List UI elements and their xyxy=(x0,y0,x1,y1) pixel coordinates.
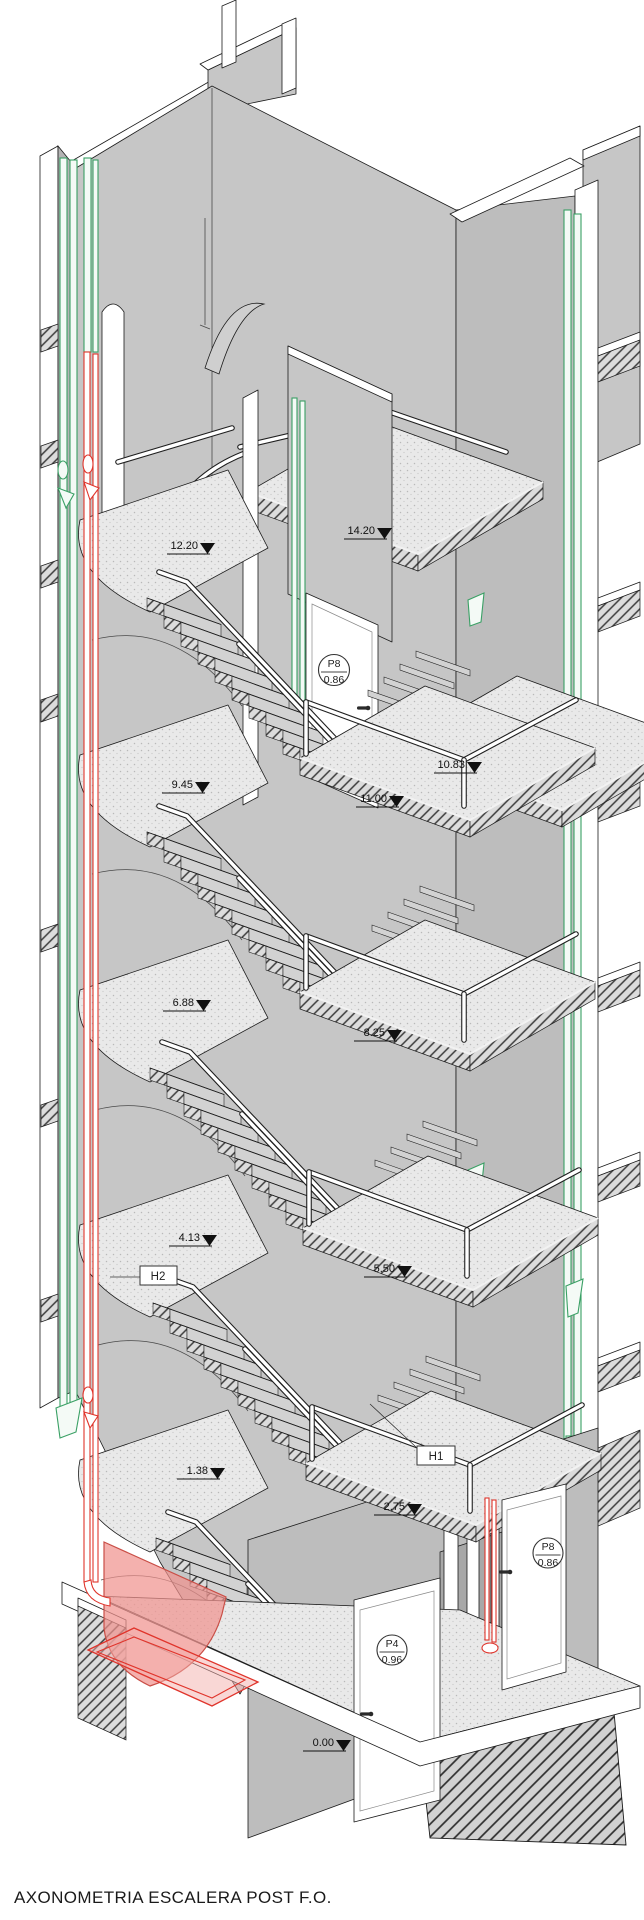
pipe-elbow xyxy=(482,1643,498,1653)
red-pipe-left xyxy=(93,354,98,1582)
drawing-title: AXONOMETRIA ESCALERA POST F.O. xyxy=(14,1888,332,1907)
level-value: 11.00 xyxy=(360,793,387,805)
door-tag-p8-lower: P8 0.86 xyxy=(533,1538,563,1569)
green-pipe-door xyxy=(300,401,305,701)
door-tag-p4: P4 0.96 xyxy=(377,1635,407,1666)
red-pipe xyxy=(485,1498,489,1640)
green-pipe-left xyxy=(93,160,98,352)
parapet-post xyxy=(222,0,236,68)
stair-axonometry-canvas: 14.20 12.20 10.83 11.00 9.45 8.25 6.88 5… xyxy=(0,0,644,1920)
door-leaf xyxy=(360,1591,434,1811)
level-value: 1.38 xyxy=(187,1465,208,1477)
hall-name: H1 xyxy=(429,1451,444,1463)
level-value: 9.45 xyxy=(172,779,193,791)
green-pipe-left xyxy=(70,160,77,1412)
green-pipe-right xyxy=(564,210,571,1466)
door-width: 0.96 xyxy=(382,1654,403,1666)
hall-name: H2 xyxy=(151,1271,166,1283)
red-pipe xyxy=(492,1500,496,1642)
parapet-post xyxy=(282,18,296,94)
level-value: 14.20 xyxy=(347,525,375,537)
level-value: 2.75 xyxy=(384,1501,405,1513)
door-handle-lever xyxy=(360,1712,371,1715)
pipe-fitting xyxy=(83,1387,93,1403)
level-value: 12.20 xyxy=(170,540,198,552)
green-pipe-left xyxy=(84,158,91,352)
pipe-fitting xyxy=(58,461,68,479)
level-value: 8.25 xyxy=(364,1027,385,1039)
level-value: 6.88 xyxy=(173,997,194,1009)
axonometric-drawing: 14.20 12.20 10.83 11.00 9.45 8.25 6.88 5… xyxy=(0,0,644,1920)
level-value: 10.83 xyxy=(437,759,465,771)
door-code: P8 xyxy=(542,1541,555,1553)
pipe-fitting xyxy=(83,455,93,473)
green-pipe-left xyxy=(60,158,67,1410)
door-width: 0.86 xyxy=(538,1557,559,1569)
green-pipe-door xyxy=(292,398,297,698)
door-code: P4 xyxy=(386,1638,399,1650)
level-value: 4.13 xyxy=(179,1232,200,1244)
level-value: 0.00 xyxy=(313,1737,334,1749)
door-leaf xyxy=(507,1496,561,1679)
door-tag-p8-upper: P8 0.86 xyxy=(319,655,350,687)
door-width: 0.86 xyxy=(324,674,345,686)
door-handle-lever xyxy=(357,706,368,709)
door-code: P8 xyxy=(328,658,341,670)
level-value: 5.50 xyxy=(374,1263,395,1275)
door-handle-lever xyxy=(499,1570,510,1573)
